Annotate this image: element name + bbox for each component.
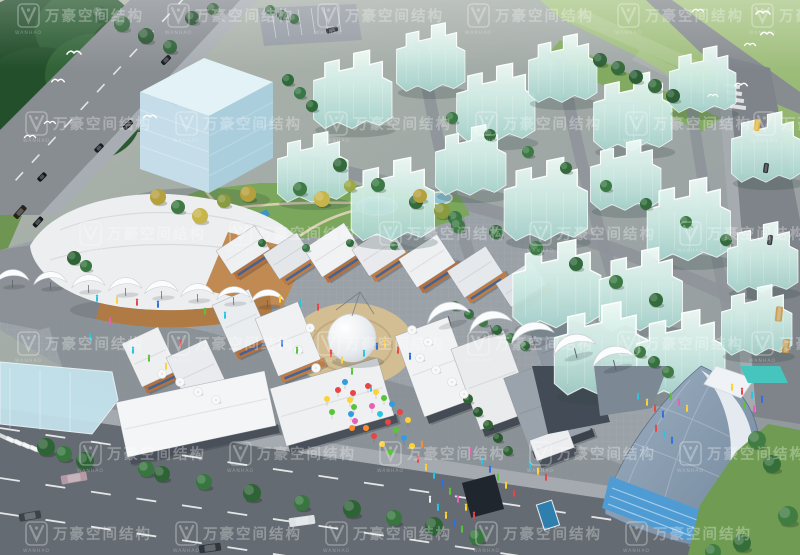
teal-canopy [740, 366, 788, 383]
watermark-text: 万豪空间结构 [780, 115, 800, 133]
person [670, 393, 672, 400]
watermark-brand: WANHAO [377, 248, 404, 254]
watermark-brand: WANHAO [23, 548, 50, 554]
watermark-brand: WANHAO [173, 138, 200, 144]
architectural-rendering: WANHAO万豪空间结构WANHAO万豪空间结构WANHAO万豪空间结构WANH… [0, 0, 800, 555]
watermark-brand: WANHAO [15, 30, 42, 36]
watermark-text: 万豪空间结构 [652, 525, 752, 543]
person [109, 318, 111, 325]
person [317, 304, 319, 311]
watermark-brand: WANHAO [465, 358, 492, 364]
watermark-brand: WANHAO [323, 548, 350, 554]
watermark-text: 万豪空间结构 [344, 7, 444, 25]
rendering-canvas: WANHAO万豪空间结构WANHAO万豪空间结构WANHAO万豪空间结构WANH… [0, 0, 800, 555]
watermark-brand: WANHAO [227, 248, 254, 254]
watermark-brand: WANHAO [377, 468, 404, 474]
watermark-text: 万豪空间结构 [644, 7, 744, 25]
watermark-brand: WANHAO [749, 30, 776, 36]
person [743, 402, 745, 409]
person [433, 472, 435, 479]
watermark-text: 万豪空间结构 [778, 7, 800, 25]
watermark-brand: WANHAO [465, 30, 492, 36]
person [449, 488, 451, 495]
watermark-brand: WANHAO [623, 548, 650, 554]
watermark-text: 万豪空间结构 [344, 335, 444, 353]
watermark-brand: WANHAO [227, 468, 254, 474]
person [671, 437, 673, 444]
watermark-brand: WANHAO [77, 248, 104, 254]
person [741, 388, 743, 395]
watermark-brand: WANHAO [751, 138, 778, 144]
person [204, 308, 206, 315]
person [437, 504, 439, 511]
person [545, 474, 547, 481]
person [663, 431, 665, 438]
watermark-brand: WANHAO [615, 30, 642, 36]
watermark-text: 万豪空间结构 [352, 115, 452, 133]
watermark-brand: WANHAO [473, 138, 500, 144]
watermark-brand: WANHAO [615, 358, 642, 364]
person [279, 296, 281, 303]
watermark-text: 万豪空间结构 [644, 335, 744, 353]
watermark-text: 万豪空间结构 [44, 335, 144, 353]
person [761, 396, 763, 403]
watermark-text: 万豪空间结构 [52, 115, 152, 133]
watermark-text: 万豪空间结构 [106, 445, 206, 463]
person [425, 464, 427, 471]
watermark-text: 万豪空间结构 [256, 445, 356, 463]
watermark-brand: WANHAO [315, 30, 342, 36]
person [655, 425, 657, 432]
watermark-brand: WANHAO [677, 248, 704, 254]
watermark-brand: WANHAO [527, 248, 554, 254]
person [351, 368, 353, 375]
person [497, 474, 499, 481]
person [457, 496, 459, 503]
person [662, 411, 664, 418]
watermark-text: 万豪空间结构 [652, 115, 752, 133]
person [465, 504, 467, 511]
watermark-text: 万豪空间结构 [502, 525, 602, 543]
person [429, 496, 431, 503]
person [116, 297, 118, 304]
person [441, 480, 443, 487]
watermark-brand: WANHAO [623, 138, 650, 144]
watermark-brand: WANHAO [23, 138, 50, 144]
person [654, 405, 656, 412]
watermark-text: 万豪空间结构 [406, 445, 506, 463]
person [489, 466, 491, 473]
watermark-brand: WANHAO [315, 358, 342, 364]
watermark-brand: WANHAO [677, 468, 704, 474]
person [224, 312, 226, 319]
watermark-brand: WANHAO [173, 548, 200, 554]
watermark-text: 万豪空间结构 [256, 225, 356, 243]
person [96, 295, 98, 302]
person [473, 512, 475, 519]
person [753, 406, 755, 413]
person [646, 399, 648, 406]
watermark-brand: WANHAO [165, 358, 192, 364]
watermark-text: 万豪空间结构 [494, 7, 594, 25]
watermark-text: 万豪空间结构 [194, 7, 294, 25]
watermark-text: 万豪空间结构 [106, 225, 206, 243]
watermark-text: 万豪空间结构 [202, 525, 302, 543]
person [299, 300, 301, 307]
person [445, 512, 447, 519]
watermark-text: 万豪空间结构 [502, 115, 602, 133]
watermark-text: 万豪空间结构 [494, 335, 594, 353]
watermark-brand: WANHAO [323, 138, 350, 144]
watermark-text: 万豪空间结构 [202, 115, 302, 133]
person [136, 299, 138, 306]
watermark-text: 万豪空间结构 [706, 225, 800, 243]
watermark-brand: WANHAO [527, 468, 554, 474]
watermark-brand: WANHAO [165, 30, 192, 36]
glass-box-building [0, 362, 118, 434]
person [461, 526, 463, 533]
person [637, 393, 639, 400]
watermark-text: 万豪空间结构 [406, 225, 506, 243]
person [296, 347, 298, 354]
person [678, 399, 680, 406]
watermark-brand: WANHAO [77, 468, 104, 474]
watermark-text: 万豪空间结构 [556, 225, 656, 243]
person [731, 384, 733, 391]
person [148, 355, 150, 362]
watermark-text: 万豪空间结构 [352, 525, 452, 543]
person [751, 392, 753, 399]
watermark-text: 万豪空间结构 [556, 445, 656, 463]
watermark-text: 万豪空间结构 [52, 525, 152, 543]
watermark-brand: WANHAO [749, 358, 776, 364]
person [686, 405, 688, 412]
person [505, 482, 507, 489]
watermark-brand: WANHAO [473, 548, 500, 554]
watermark-text: 万豪空间结构 [194, 335, 294, 353]
watermark-text: 万豪空间结构 [778, 335, 800, 353]
person [513, 490, 515, 497]
watermark-text: 万豪空间结构 [44, 7, 144, 25]
person [453, 520, 455, 527]
watermark-text: 万豪空间结构 [706, 445, 800, 463]
watermark-brand: WANHAO [15, 358, 42, 364]
person [157, 301, 159, 308]
person [409, 353, 411, 360]
